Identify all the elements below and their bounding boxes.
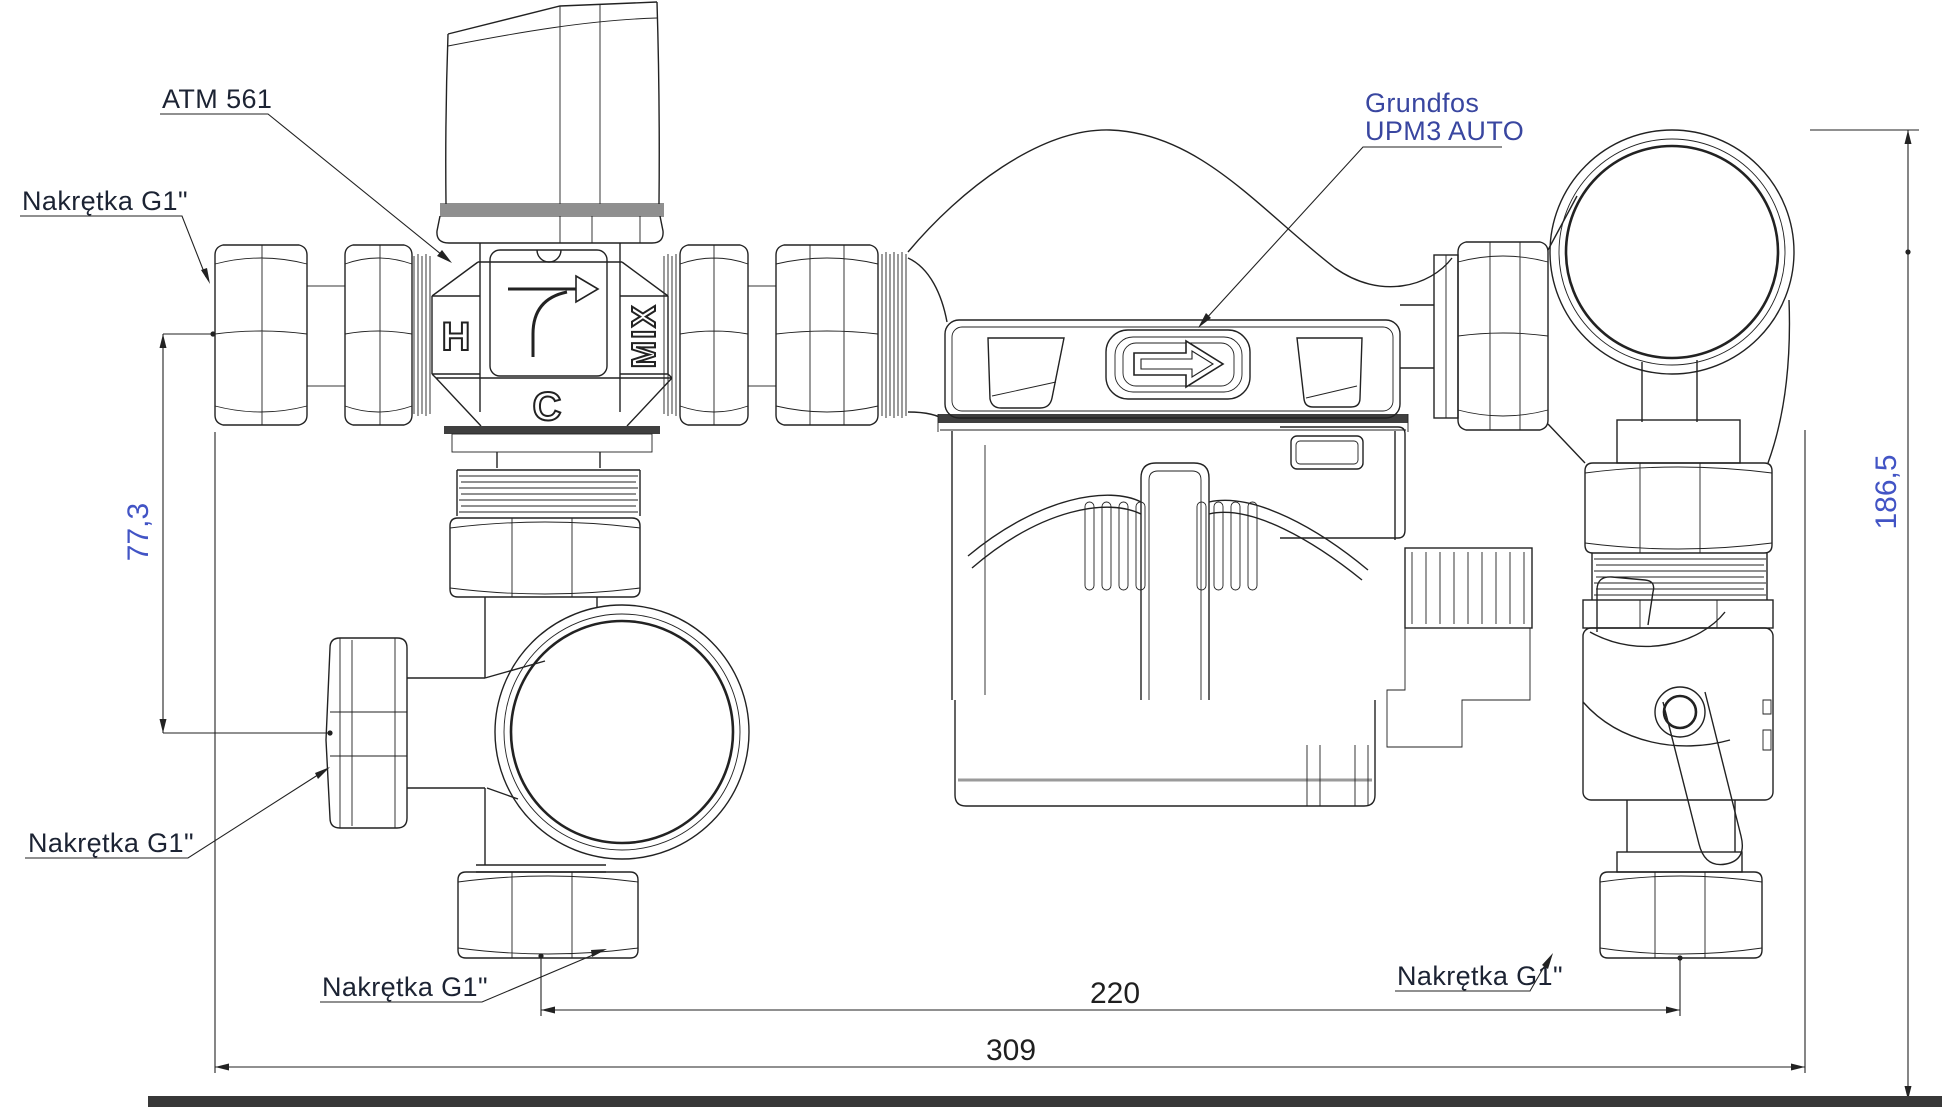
pump-model-label: UPM3 AUTO: [1365, 116, 1524, 146]
hex-nut-ball-valve: [1585, 463, 1772, 553]
dimension-left-height: 77,3: [122, 503, 155, 561]
hex-nut-below-valve: [450, 518, 640, 597]
callout-nut-top-left: Nakrętka G1": [20, 186, 210, 284]
valve-lower-stem: [1627, 800, 1735, 852]
valve-stem-circle: [1655, 687, 1705, 737]
flow-direction-icon: [508, 276, 598, 357]
port-label-cold: C: [533, 385, 562, 429]
pump-cooling-fins: [1085, 502, 1257, 590]
union-nut-right: [1458, 242, 1548, 430]
lower-branch: [326, 470, 749, 958]
pump: [938, 320, 1532, 806]
union-collar-left: [307, 286, 345, 386]
ball-valve-threads: [1594, 559, 1766, 595]
pump-display: [1106, 330, 1250, 399]
valve-lower-collar: [1617, 852, 1742, 872]
ball-valve-body: [1583, 577, 1773, 865]
callout-nut-bottom-right: Nakrętka G1": [1395, 953, 1563, 991]
union-nut-left-outer: [215, 245, 307, 425]
union-nut-mix-side: [680, 245, 748, 425]
right-assembly: [1400, 130, 1794, 958]
pump-brand-label: Grundfos: [1365, 88, 1479, 118]
valve-handle: [1583, 577, 1742, 865]
nut-label-bottom-center: Nakrętka G1": [322, 972, 488, 1002]
port-label-mix: MIX: [625, 304, 662, 369]
tee-body-right: [1548, 196, 1789, 463]
valve-model-label: ATM 561: [162, 84, 272, 114]
callout-grundfos: Grundfos UPM3 AUTO: [1198, 88, 1524, 328]
pump-head: [945, 320, 1400, 418]
threads-pump-side: [882, 252, 906, 418]
port-label-hot: H: [442, 315, 471, 359]
drawing-page: H C MIX: [0, 0, 1942, 1107]
handwheel-valve: [326, 638, 407, 828]
ball-valve-threads-edges: [1592, 553, 1767, 600]
dimension-186-5: 186,5: [1810, 130, 1919, 1100]
pump-outlet-pipe: [1400, 305, 1434, 368]
union-nut-left-inner: [345, 245, 412, 425]
control-bracket: [1387, 628, 1530, 747]
union-nut-pump-side: [776, 245, 878, 425]
dimension-total-height: 186,5: [1870, 454, 1903, 529]
tee-circle-right: [1550, 130, 1794, 374]
knob-band: [440, 205, 664, 215]
callout-nut-bottom-center: Nakrętka G1": [320, 949, 607, 1002]
threads-left: [414, 254, 430, 416]
dimension-77-3: 77,3: [122, 331, 333, 735]
valve-neck: [480, 243, 620, 262]
dimension-total-width: 309: [986, 1034, 1036, 1067]
dimension-pump-span: 220: [1090, 977, 1140, 1010]
technical-drawing: H C MIX: [0, 0, 1942, 1107]
valve-body: H C MIX: [432, 250, 672, 468]
callout-nut-mid-left: Nakrętka G1": [25, 767, 330, 858]
nut-label-bottom-right: Nakrętka G1": [1397, 961, 1563, 991]
union-collar-mix-side: [748, 286, 776, 386]
pump-center-column: [1141, 463, 1209, 700]
nut-label-mid-left: Nakrętka G1": [28, 828, 194, 858]
pump-flow-arrow-icon: [1134, 341, 1223, 387]
tee-down-pipe: [1642, 360, 1697, 422]
terminal-fin-block: [1405, 548, 1532, 628]
valve-side-marks: [1763, 700, 1771, 750]
mixing-valve-assembly: H C MIX: [215, 2, 906, 958]
callout-atm561: ATM 561: [160, 84, 452, 263]
threads-mix-side: [664, 254, 676, 416]
hex-nut-bottom-left: [458, 872, 638, 958]
pipe-collar-right: [1617, 420, 1740, 463]
valve-front-panel: [490, 250, 607, 376]
hex-nut-bottom-right: [1600, 872, 1762, 958]
pump-control-box: [1280, 427, 1532, 747]
nut-label-top-left: Nakrętka G1": [22, 186, 188, 216]
washer-right: [1434, 255, 1458, 418]
baseplate-bar: [148, 1096, 1942, 1107]
thermostat-knob: [437, 2, 664, 243]
tee-circle-left: [495, 605, 749, 859]
pump-lower-body: [955, 700, 1375, 806]
